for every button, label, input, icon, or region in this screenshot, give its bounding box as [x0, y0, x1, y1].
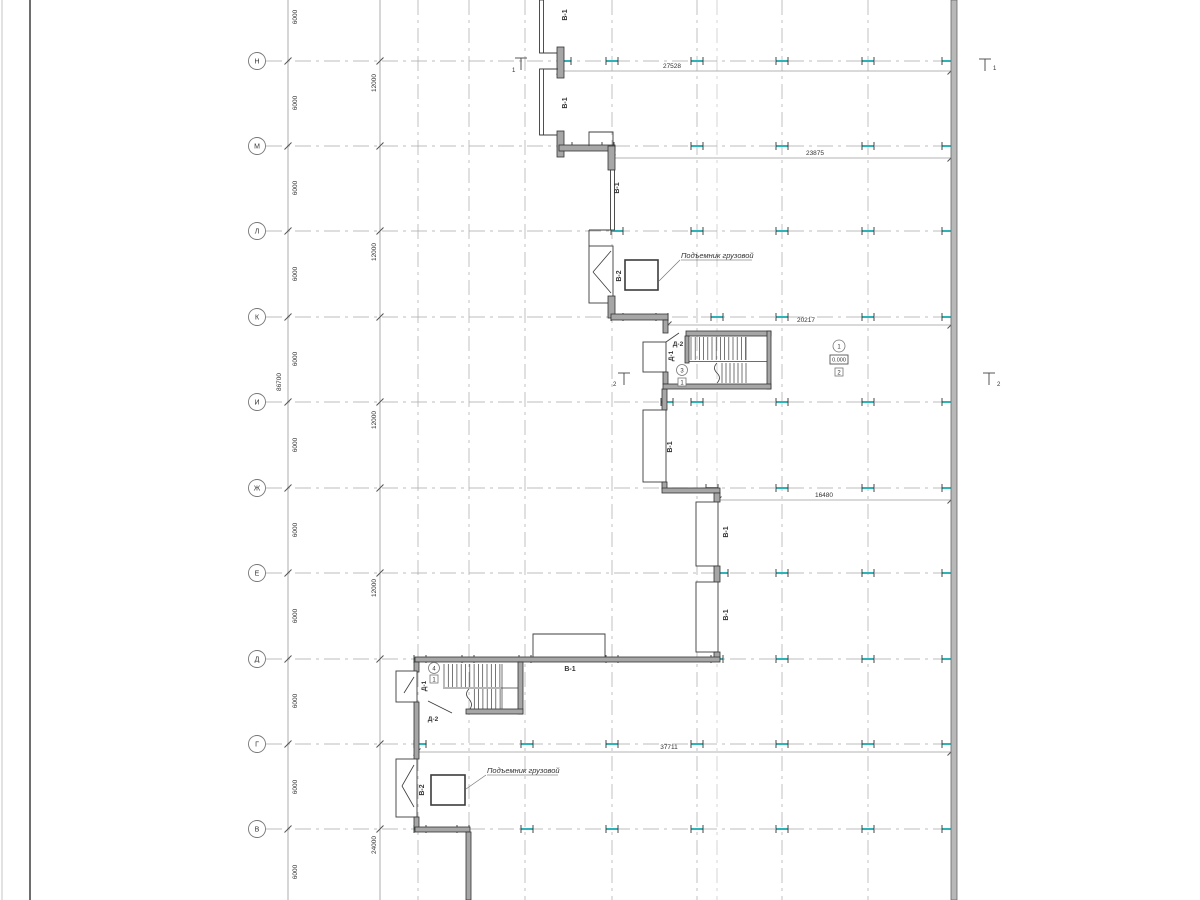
level-mark: 1 0.000 2 [830, 340, 848, 377]
dim-24000: 24000 [371, 836, 378, 854]
dim-12000: 12000 [371, 243, 378, 261]
axis-row-label: Л [255, 229, 260, 236]
axis-row-label: М [254, 144, 260, 151]
section-label: 1 [512, 68, 516, 74]
floor-plan-sheet: Н М Л К И Ж Е Д Г В 6000 6000 60 [0, 0, 1200, 900]
door-label-d2: Д-2 [673, 341, 684, 348]
dim-12000: 12000 [371, 579, 378, 597]
axis-row-label: Д [255, 657, 260, 664]
door-label-d1: Д-1 [421, 680, 428, 691]
axis-row-label: И [254, 400, 259, 407]
section-mark-2-right: 2 [983, 373, 1001, 388]
dim-6000: 6000 [292, 95, 299, 110]
dim-16480: 16480 [815, 492, 833, 499]
dim-20217: 20217 [797, 317, 815, 324]
section-label: 1 [993, 66, 997, 72]
window-label-v1: В-1 [562, 97, 569, 108]
level-value: 0.000 [832, 358, 846, 364]
window-label-v1: В-1 [723, 609, 730, 620]
dim-23875: 23875 [806, 150, 824, 157]
floor-plan-drawing: Н М Л К И Ж Е Д Г В 6000 6000 60 [0, 0, 1200, 900]
hoist-shaft [625, 260, 658, 290]
section-label: 2 [997, 382, 1001, 388]
dim-6000: 6000 [292, 180, 299, 195]
dim-6000: 6000 [292, 266, 299, 281]
window-label-v2: В-2 [419, 784, 426, 795]
dim-12000: 12000 [371, 74, 378, 92]
section-mark-1-right: 1 [979, 59, 997, 72]
row-axes: Н М Л К И Ж Е Д Г В [249, 53, 952, 838]
window-label-v1: В-1 [723, 526, 730, 537]
section-marks: 1 1 2 2 [512, 58, 1001, 388]
door-label-d1: Д-1 [668, 350, 675, 361]
hoist-label: Подъемник грузовой [487, 766, 560, 775]
dim-27528: 27528 [663, 63, 681, 70]
axis-row-label: Е [255, 571, 260, 578]
dim-6000: 6000 [292, 608, 299, 623]
sheet-frame [2, 0, 30, 900]
dim-6000: 6000 [292, 351, 299, 366]
hoist-shaft [431, 775, 465, 805]
dim-86700: 86700 [276, 373, 283, 391]
dim-6000: 6000 [292, 437, 299, 452]
dim-6000: 6000 [292, 779, 299, 794]
axis-row-label: В [255, 827, 260, 834]
dim-37711: 37711 [660, 744, 678, 751]
window-label-v2: В-2 [616, 270, 623, 281]
window-label-v1: В-1 [562, 9, 569, 20]
axis-row-label: Ж [254, 486, 261, 493]
window-label-v1: В-1 [564, 666, 575, 673]
dim-12000: 12000 [371, 411, 378, 429]
window-label-v1: В-1 [614, 182, 621, 193]
stair-treads-lower [722, 363, 746, 383]
dim-6000: 6000 [292, 9, 299, 24]
stair-left: 4 1 Д-1 Д-2 [421, 662, 523, 723]
stair-middle: 3 1 Д-2 Д-1 [643, 320, 771, 389]
dim-6000: 6000 [292, 693, 299, 708]
section-mark-2-left: 2 [613, 373, 630, 388]
dim-6000: 6000 [292, 522, 299, 537]
stair-treads-upper [691, 337, 746, 360]
axis-row-label: Н [254, 59, 259, 66]
door-label-d2: Д-2 [428, 716, 439, 723]
horizontal-dimensions: 27528 23875 20217 16480 37711 [414, 63, 955, 756]
window-label-v1: В-1 [667, 441, 674, 452]
chain-ticks [285, 58, 384, 833]
left-dimension-chains: 6000 6000 6000 6000 6000 6000 6000 6000 … [276, 0, 384, 900]
outer-wall-right [951, 0, 957, 900]
stair-treads-upper [444, 664, 500, 687]
building-walls [396, 0, 957, 900]
column-ticks [414, 57, 954, 833]
hoist-label: Подъемник грузовой [681, 251, 754, 260]
axis-row-label: Г [255, 742, 259, 749]
dim-6000: 6000 [292, 864, 299, 879]
stair-treads-lower [474, 689, 500, 710]
section-label: 2 [613, 382, 617, 388]
